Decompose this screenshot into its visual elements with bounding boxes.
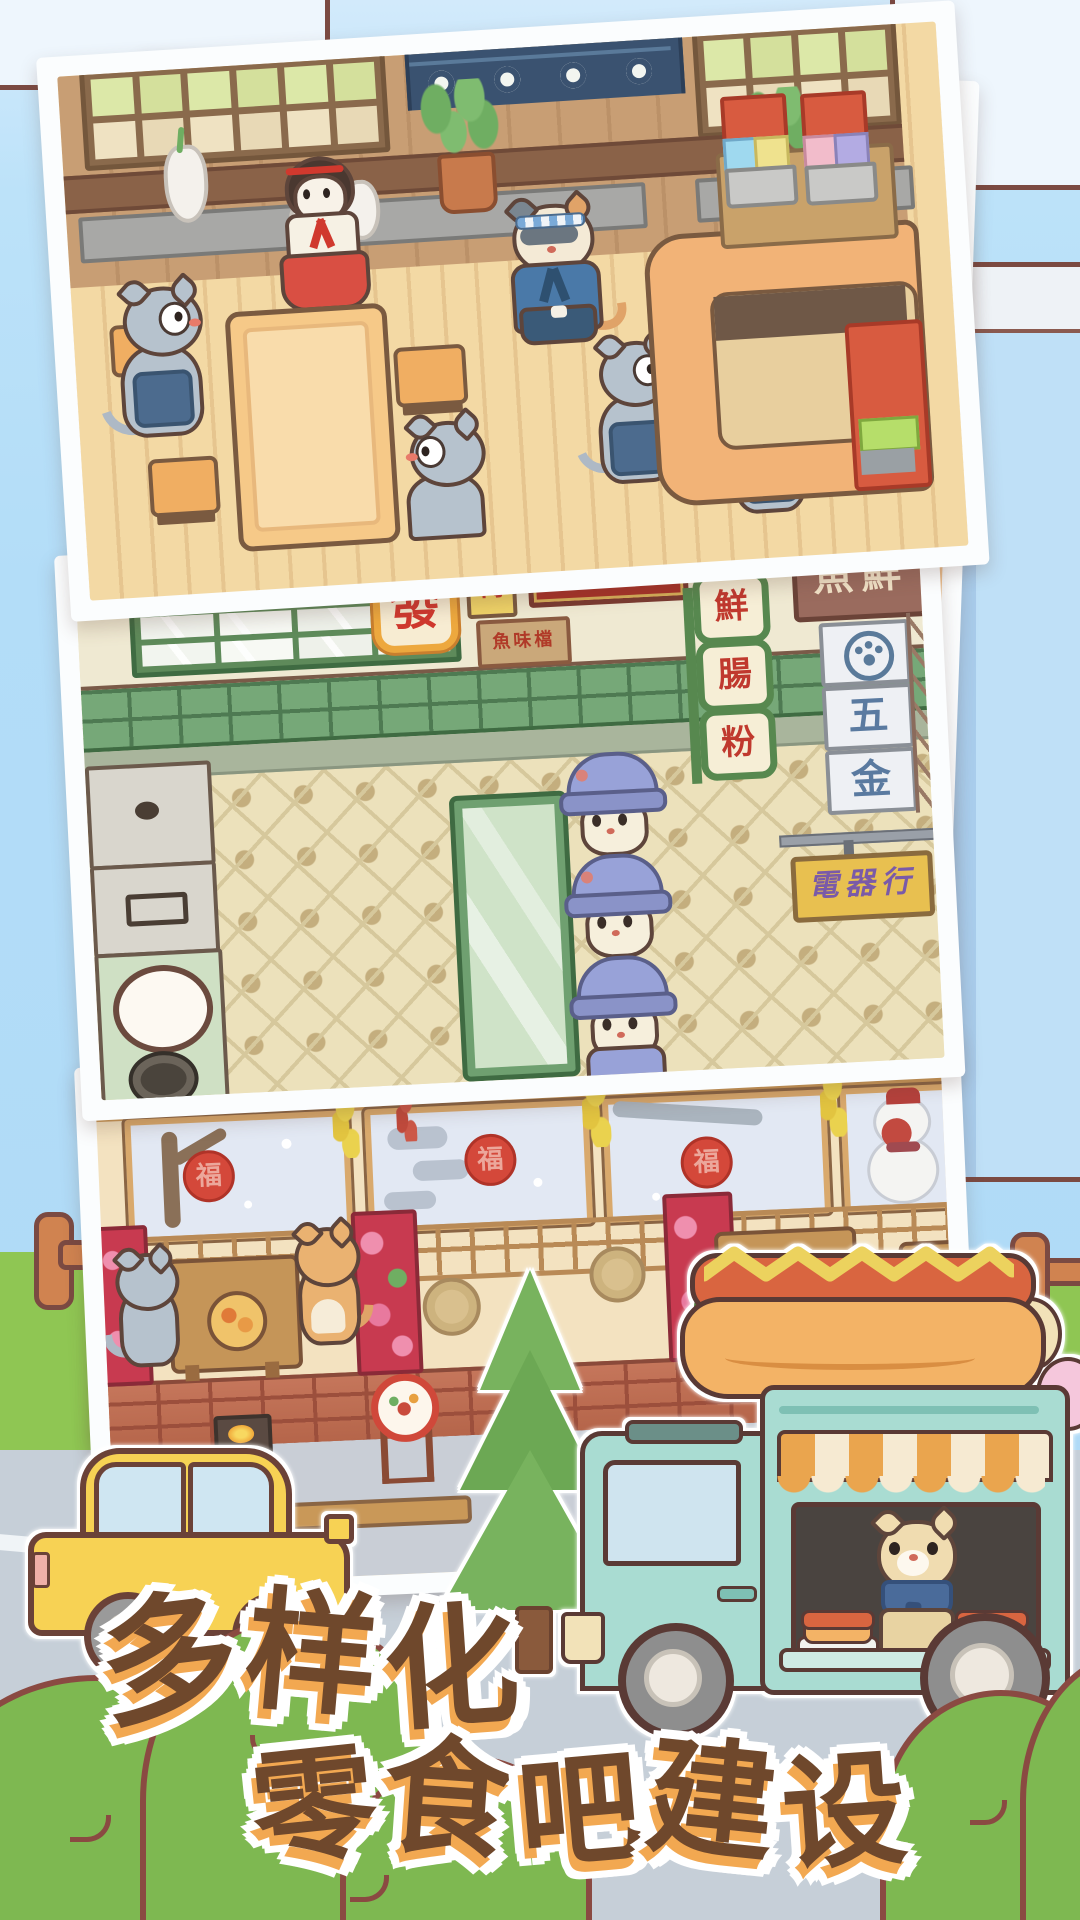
cabinet-knob xyxy=(135,801,160,820)
vertical-sign-char: 粉 xyxy=(720,722,756,764)
lattice-pane xyxy=(90,77,134,116)
cabinet-unit-mid xyxy=(90,860,220,958)
street-scene: 發 轉 財發喜慶 魚味檔 xyxy=(75,532,945,1100)
bucket-hat-brim xyxy=(564,889,673,918)
cat-body-patch xyxy=(310,1298,345,1333)
vertical-sign-tile: 粉 xyxy=(699,706,779,782)
chef-skirt xyxy=(519,303,599,346)
snow-drift xyxy=(384,1190,437,1210)
fu-char: 福 xyxy=(195,1161,222,1192)
plaque-chars: 魚味檔 xyxy=(492,629,556,653)
window-pane xyxy=(297,606,370,631)
waitress xyxy=(269,154,368,309)
hat-cat xyxy=(559,752,660,861)
cabinet-unit-top xyxy=(85,760,216,870)
window-pane xyxy=(142,642,215,667)
lattice-pane xyxy=(845,30,888,72)
cabinet-handle xyxy=(125,892,189,927)
snow-dot xyxy=(652,1193,660,1201)
washer-drum xyxy=(127,1049,200,1100)
cat-eye xyxy=(889,1542,900,1555)
long-table xyxy=(224,303,401,553)
title-char: 设 xyxy=(779,1747,911,1879)
cat-nose xyxy=(909,1554,918,1561)
lattice-pane xyxy=(284,65,328,104)
cat-grey-seated xyxy=(110,1252,179,1367)
title-char: 建 xyxy=(641,1732,782,1873)
dispenser-base xyxy=(804,161,878,205)
awning xyxy=(777,1430,1053,1482)
lattice-window xyxy=(79,50,391,171)
drink-dispenser xyxy=(800,90,873,200)
cat-grey-sitting xyxy=(390,418,497,534)
title-char: 多 xyxy=(92,1584,246,1738)
title-char: 化 xyxy=(380,1596,523,1739)
lattice-pane xyxy=(798,33,841,75)
cat-apron xyxy=(132,369,195,429)
cat-grey-sitting xyxy=(99,283,220,440)
snow-dot xyxy=(281,1139,291,1149)
cab-window xyxy=(603,1460,741,1566)
lattice-pane xyxy=(93,120,137,159)
lattice-pane xyxy=(703,39,746,81)
chef-cat xyxy=(496,201,609,347)
bun-shine xyxy=(725,1346,975,1370)
electronics-sign: 電器行 xyxy=(790,850,935,923)
table-top-inner xyxy=(242,321,381,533)
belt-knot xyxy=(551,305,568,318)
winter-window-4 xyxy=(840,1084,959,1213)
window-pane xyxy=(298,634,371,659)
car-mirror xyxy=(324,1514,354,1544)
snowman-scarf xyxy=(886,1141,920,1152)
plant-leaves xyxy=(410,77,505,162)
snow-dot xyxy=(533,1178,542,1187)
cat-stack xyxy=(559,752,671,1076)
hardware-char: 金 xyxy=(850,756,892,804)
hotdog-mustard xyxy=(704,1245,1014,1289)
bush-mound xyxy=(1020,1650,1080,1920)
restaurant-scene xyxy=(57,21,968,600)
lattice-pane xyxy=(750,36,793,78)
snow-drift xyxy=(412,1159,469,1181)
snow-tree xyxy=(161,1132,181,1229)
lattice-pane xyxy=(287,108,331,147)
lattice-pane xyxy=(187,71,231,110)
noren-crest xyxy=(559,62,587,90)
snow-branch xyxy=(612,1101,763,1126)
vertical-sign-char: 鮮 xyxy=(713,586,749,628)
electronics-chars: 電器行 xyxy=(808,864,918,904)
bucket-hat-brim xyxy=(559,787,668,816)
paw-icon xyxy=(843,630,895,682)
fu-sticker: 福 xyxy=(680,1135,734,1189)
fire-glow xyxy=(228,1425,255,1444)
cat-orange-seated xyxy=(289,1226,360,1345)
window-pane xyxy=(140,614,213,639)
lattice-pane xyxy=(238,111,282,150)
bucket-hat-brim xyxy=(569,991,678,1020)
table-legs xyxy=(265,1361,280,1378)
fu-sticker: 福 xyxy=(463,1133,517,1187)
cat-eye xyxy=(927,1542,938,1555)
hotdog-bun xyxy=(680,1297,1046,1399)
food-truck xyxy=(560,1235,1080,1705)
snowman-hat xyxy=(886,1087,921,1104)
mini-sausage xyxy=(801,1610,875,1630)
vertical-sign-tile: 腸 xyxy=(695,638,775,714)
cab-roof-bar xyxy=(625,1420,743,1444)
potted-plant xyxy=(410,77,514,213)
table-legs xyxy=(185,1365,200,1382)
green-mirror xyxy=(449,790,581,1082)
hardware-tile: 金 xyxy=(825,747,918,815)
hotdog-topper xyxy=(680,1235,1036,1395)
mirror-glass xyxy=(462,804,567,1068)
window-pane xyxy=(219,610,292,635)
stool xyxy=(393,344,469,408)
paw-logo-tile xyxy=(818,619,911,687)
stool xyxy=(147,455,221,517)
brown-plaque-sign: 魚味檔 xyxy=(476,616,572,669)
snow-dot xyxy=(244,1200,252,1208)
truck-wheel xyxy=(618,1623,734,1739)
photo-restaurant xyxy=(36,0,990,622)
hotdog-plate xyxy=(797,1612,875,1652)
hat-cat xyxy=(564,854,665,963)
title-line-2: 零 食 吧 建 设 xyxy=(252,1742,906,1870)
winter-window-1: 福 xyxy=(124,1110,353,1244)
title-line-1: 多 样 化 xyxy=(100,1592,518,1730)
title-char: 样 xyxy=(240,1584,383,1727)
awning-scallops xyxy=(777,1476,1045,1494)
dispenser-base xyxy=(724,164,798,208)
fu-char: 福 xyxy=(693,1147,720,1178)
display-stool xyxy=(370,1373,429,1483)
fu-sticker: 福 xyxy=(182,1149,236,1203)
lattice-pane xyxy=(236,68,280,107)
app-store-screenshot: 福 福 福 xyxy=(0,0,1080,1920)
lattice-pane xyxy=(139,74,183,113)
table xyxy=(166,1254,303,1374)
title-char: 吧 xyxy=(513,1745,645,1877)
title-char: 零 xyxy=(246,1739,382,1875)
fu-char: 福 xyxy=(477,1144,504,1175)
window-pane xyxy=(220,638,293,663)
lattice-pane xyxy=(332,62,376,101)
drink-dispenser xyxy=(720,93,793,203)
noren-crest xyxy=(625,57,653,85)
washer-panel xyxy=(94,948,230,1100)
hat-cat xyxy=(569,956,671,1077)
hardware-tile: 五 xyxy=(822,683,915,751)
vertical-sign-char: 腸 xyxy=(717,654,753,696)
food-plate xyxy=(206,1290,269,1353)
wheel-hub xyxy=(644,1649,702,1707)
lattice-pane xyxy=(335,105,379,144)
washer-door xyxy=(111,963,215,1056)
title-char: 食 xyxy=(379,1732,516,1869)
box-roof-line xyxy=(779,1406,1039,1414)
cat-body-blue xyxy=(586,1044,668,1086)
plant-pot xyxy=(437,151,499,215)
car-taillight xyxy=(32,1552,50,1588)
hardware-char: 五 xyxy=(847,692,889,740)
vending-base xyxy=(860,448,915,475)
vending-machine xyxy=(844,319,932,492)
cab-handle xyxy=(717,1586,757,1602)
sprout xyxy=(176,127,184,153)
